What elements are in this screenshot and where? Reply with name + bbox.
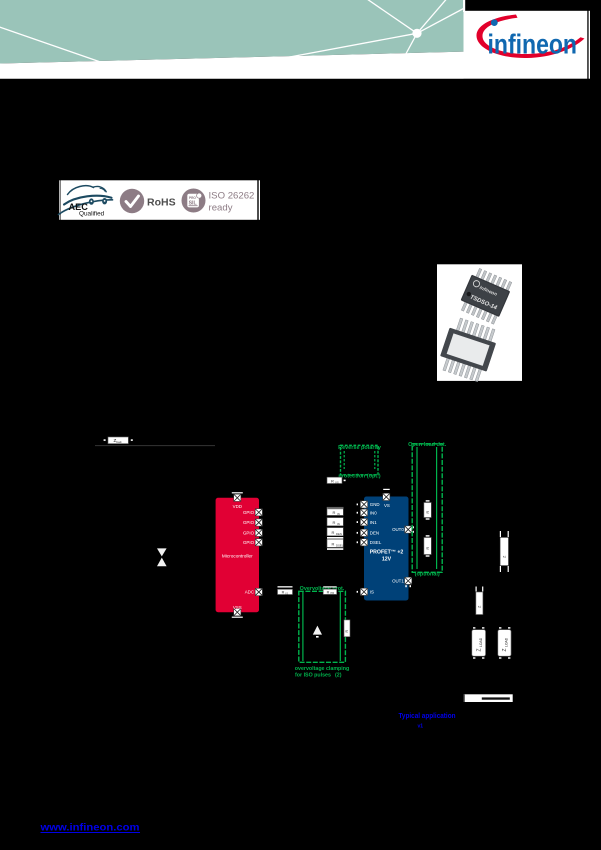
- svg-text:DEN: DEN: [336, 532, 342, 536]
- svg-text:Open load det.: Open load det.: [408, 442, 447, 448]
- svg-text:www.infineon.com: www.infineon.com: [39, 823, 139, 834]
- svg-text:VSS: VSS: [233, 605, 242, 610]
- svg-text:IN1: IN1: [370, 520, 377, 525]
- svg-text:Z: Z: [477, 648, 483, 651]
- svg-text:overvoltage clamping: overvoltage clamping: [295, 666, 349, 672]
- svg-text:(2): (2): [335, 673, 342, 679]
- svg-text:RoHS: RoHS: [147, 197, 176, 209]
- svg-text:v1: v1: [418, 724, 424, 730]
- svg-text:R: R: [345, 630, 349, 633]
- svg-text:DEN: DEN: [370, 531, 379, 536]
- svg-text:PRO: PRO: [189, 196, 196, 200]
- svg-text:GPIO: GPIO: [243, 510, 255, 515]
- svg-text:LOAD: LOAD: [505, 637, 509, 647]
- svg-text:ISO 26262: ISO 26262: [209, 191, 255, 202]
- svg-text:DSEL: DSEL: [370, 540, 382, 545]
- svg-text:batt: batt: [117, 440, 122, 444]
- svg-text:R: R: [327, 590, 330, 594]
- svg-text:R: R: [426, 511, 430, 514]
- svg-text:PROFET™ +2: PROFET™ +2: [370, 550, 404, 556]
- svg-text:R: R: [333, 520, 336, 525]
- svg-text:GPIO: GPIO: [243, 540, 255, 545]
- svg-text:R: R: [426, 547, 430, 550]
- svg-text:OUT0: OUT0: [392, 527, 404, 532]
- svg-text:R: R: [332, 530, 335, 535]
- svg-text:Microcontroller: Microcontroller: [222, 553, 253, 558]
- svg-text:LOAD: LOAD: [479, 637, 483, 647]
- svg-text:VS: VS: [335, 480, 339, 484]
- svg-text:R: R: [331, 478, 334, 483]
- svg-text:GND: GND: [370, 502, 380, 507]
- svg-text:R: R: [332, 541, 335, 546]
- svg-text:IS: IS: [286, 591, 289, 595]
- svg-text:(optional): (optional): [415, 571, 440, 577]
- svg-text:GPIO: GPIO: [243, 520, 255, 525]
- svg-text:IS: IS: [370, 590, 374, 595]
- svg-text:OUT1: OUT1: [392, 579, 404, 584]
- svg-text:Typical application: Typical application: [399, 711, 456, 720]
- svg-text:R: R: [282, 591, 285, 595]
- svg-text:IN0: IN0: [370, 510, 377, 515]
- svg-text:Qualified: Qualified: [79, 211, 105, 218]
- svg-text:Overvoltage prot.: Overvoltage prot.: [300, 586, 345, 592]
- svg-text:infineon: infineon: [488, 28, 578, 59]
- svg-text:DSEL: DSEL: [336, 543, 344, 547]
- svg-text:for ISO pulses: for ISO pulses: [295, 673, 331, 679]
- svg-text:R: R: [333, 510, 336, 515]
- svg-text:protection (opt.): protection (opt.): [338, 473, 380, 479]
- svg-text:IN: IN: [337, 522, 340, 526]
- svg-text:GPIO: GPIO: [243, 531, 255, 536]
- svg-text:Reverse polarity: Reverse polarity: [338, 445, 382, 451]
- svg-text:Z: Z: [502, 648, 508, 651]
- svg-text:IN: IN: [337, 512, 340, 516]
- svg-text:ADC: ADC: [245, 590, 254, 595]
- svg-text:12V: 12V: [382, 557, 392, 563]
- svg-text:VS: VS: [384, 503, 390, 508]
- svg-text:PR: PR: [331, 591, 335, 595]
- svg-text:VDD: VDD: [233, 504, 242, 509]
- svg-text:ready: ready: [209, 203, 233, 214]
